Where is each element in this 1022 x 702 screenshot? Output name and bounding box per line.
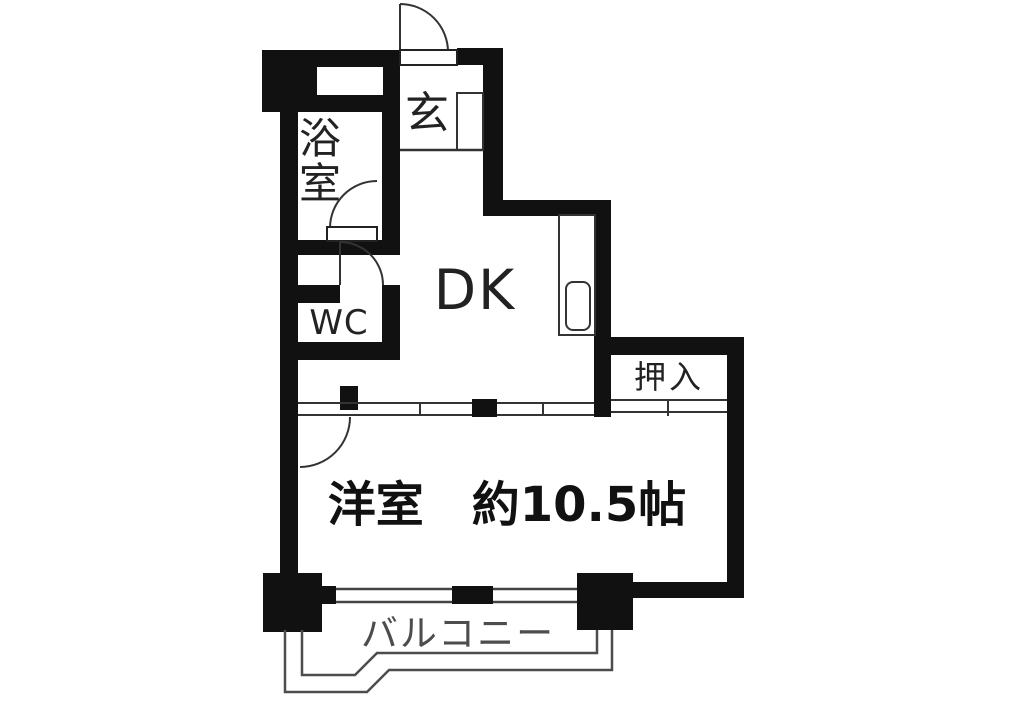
floorplan-drawing: 玄 浴 室 WC DK 押入 洋室 約10.5帖 バルコニー xyxy=(0,0,1022,702)
label-wc: WC xyxy=(309,303,368,343)
wall-inset-box xyxy=(317,67,383,95)
label-bathroom-char2: 室 xyxy=(299,159,341,208)
label-genkan: 玄 xyxy=(405,88,449,139)
balcony-window xyxy=(322,589,577,602)
pillar-bottom-left xyxy=(263,573,322,632)
label-dk: DK xyxy=(434,258,516,322)
shoe-cabinet xyxy=(457,93,483,150)
wall-left-outer xyxy=(280,112,298,575)
label-bathroom-char1: 浴 xyxy=(299,114,341,163)
wall-genkan-right xyxy=(483,48,503,200)
bathroom-door-leaf xyxy=(327,227,377,241)
wall-dk-right xyxy=(594,200,611,417)
label-balcony: バルコニー xyxy=(361,612,555,655)
window-left-stub xyxy=(322,586,336,604)
label-main-room: 洋室 約10.5帖 xyxy=(328,477,686,533)
wall-wc-top xyxy=(298,285,340,303)
wall-closet-top xyxy=(610,337,742,355)
wall-bottom-right xyxy=(633,582,742,598)
label-closet: 押入 xyxy=(634,358,704,396)
wall-dk-top xyxy=(483,200,611,216)
wall-partition-stub xyxy=(340,386,358,410)
entrance-door-arc xyxy=(400,4,448,52)
floorplan-canvas: 玄 浴 室 WC DK 押入 洋室 約10.5帖 バルコニー xyxy=(0,0,1022,702)
partition-center-block xyxy=(472,399,497,417)
window-center-block xyxy=(452,586,493,604)
pillar-bottom-right xyxy=(577,573,633,630)
entrance-door-leaf xyxy=(400,50,457,65)
wall-right-outer xyxy=(727,337,744,598)
main-room-door-arc xyxy=(300,417,350,467)
wall-wc-bottom xyxy=(298,342,400,360)
kitchen-sink xyxy=(566,282,590,330)
wall-bath-genkan xyxy=(382,50,400,255)
